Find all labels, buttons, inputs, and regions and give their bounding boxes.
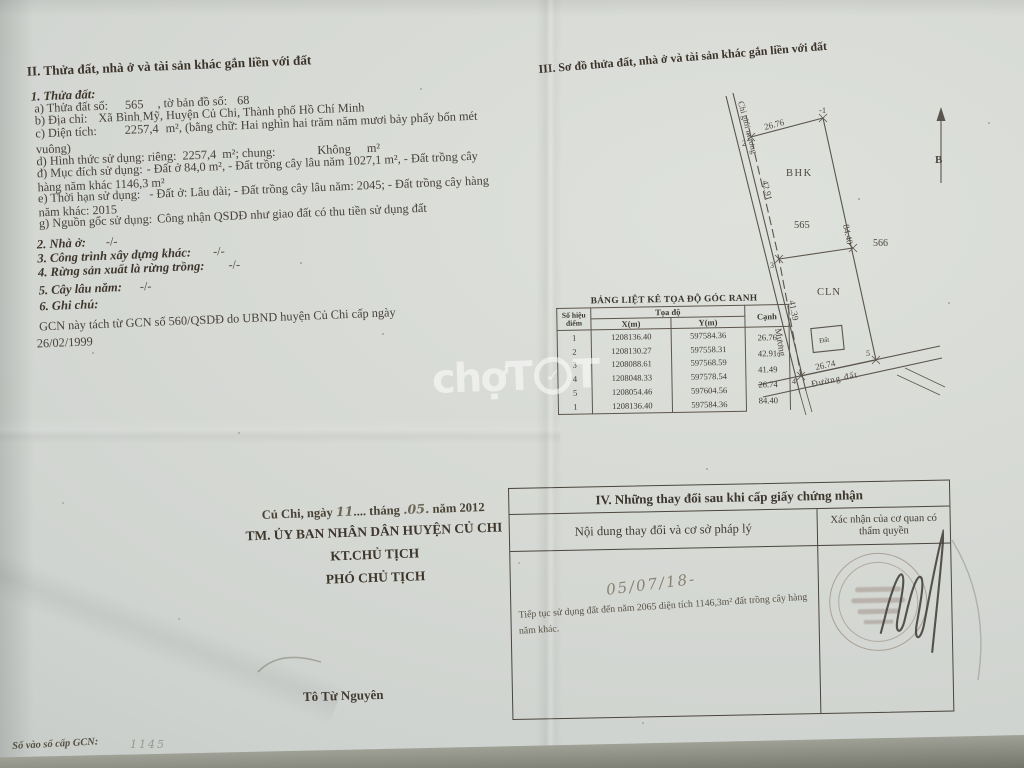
gcn-register-handwriting: 1145 [130,738,166,751]
x-value: 1208136.40 [591,328,671,344]
section-ii: II. Thửa đất, nhà ở và tài sản khác gắn … [20,29,559,400]
y-value: 597578.54 [672,369,746,384]
x-value: 1208136.40 [592,398,672,414]
watermark-t2: T [572,351,601,398]
point-5-label: 5 [866,349,870,358]
edge-2-3-label: 42.91 [760,179,774,201]
point-id: 1 [558,399,592,414]
area-value: 2257,4 [124,122,158,137]
ditch-line-1-ext [800,394,806,415]
x-value: 1208088.61 [592,357,672,372]
signature-block: Củ Chi, ngày 11.... tháng .05. năm 2012 … [228,498,521,591]
house-value: -/- [106,234,118,248]
note-line-2: 26/02/1999 [37,334,94,351]
edge-length: 84.40 [747,395,790,406]
handwritten-month: .05. [403,501,430,517]
line-perennial: 5. Cây lâu năm:-/- [38,279,151,299]
handwritten-day: 11 [336,504,354,520]
perennial-label: 5. Cây lâu năm: [38,280,122,297]
watermark-check-icon: ✓ [533,356,572,395]
col-edge-header: Cạnh [745,304,789,327]
zone-divider [779,248,853,259]
photo-shadow-top [0,0,1024,16]
watermark-t1: T [505,353,534,400]
place-date-mid: .... tháng [353,503,400,519]
paper-crease-horizontal [0,418,560,444]
underlying-page-edge [948,540,1018,680]
issuing-authority: TM. ỦY BAN NHÂN DÂN HUYỆN CỦ CHI [229,519,519,545]
authority-confirmation-cell [818,544,953,714]
place-date-suffix: năm 2012 [432,500,485,516]
point-2-label: 2 [742,139,746,148]
north-label: B [935,154,943,166]
edge-4-5-label: 26.74 [814,358,836,372]
x-value: 1208130.27 [591,343,671,358]
x-value: 1208054.46 [592,384,672,399]
line-notes-label: 6. Ghi chú: [39,297,99,314]
edge-2-1-label: 26.76 [763,117,786,132]
official-signature [852,522,947,659]
chotot-watermark: chợ T ✓ T [431,351,601,403]
perennial-value: -/- [140,279,152,293]
north-edge [751,118,823,137]
ditch-boundary-label: Chỉ giới mương [736,100,760,156]
term-text: - Đất ở: Lâu dài; - Đất trồng cây lâu nă… [149,173,489,201]
edge-length: 42.91 [746,348,789,359]
origin-text: Công nhận QSDĐ như giao đất có thu tiền … [157,201,427,226]
plot-id-label: 565 [794,220,810,231]
ditch-line-2-ext [806,391,812,412]
north-arrow-head [937,107,946,121]
y-value: 597584.36 [672,397,746,413]
area-label: c) Diện tích: [35,124,97,140]
road-branch-2 [897,375,940,395]
y-value: 597604.56 [672,383,746,398]
point-3-label: 3 [770,261,774,270]
y-value: 597584.36 [671,327,745,343]
edge-length: 41.49 [746,364,789,375]
edge-length: 26.74 [746,379,789,390]
edge-lengths: 26.76 42.91 41.49 26.74 84.40 [745,326,790,411]
neighbor-id-label: 566 [873,238,888,249]
landuse-bottom-label: CLN [817,287,841,298]
handwritten-change-date: 05/07/18- [605,570,697,599]
section-ii-title: II. Thửa đất, nhà ở và tài sản khác gắn … [27,52,312,79]
y-value: 597568.59 [672,355,746,370]
structure-label: Đất [819,336,830,345]
landuse-top-label: BHK [786,168,813,179]
point-id: 1 [557,330,591,345]
y-value: 597558.31 [671,341,745,356]
point-1-label: -1 [819,105,826,115]
photo-canvas: II. Thửa đất, nhà ở và tài sản khác gắn … [0,0,1024,768]
title-kt-chu-tich: KT.CHỦ TỊCH [230,542,520,568]
x-value: 1208048.33 [592,370,672,385]
edge-length: 26.76 [746,332,789,343]
watermark-word: chợ [431,354,506,403]
edge-1-5-label: 84.40 [841,223,855,245]
photo-shadow-left [0,0,34,768]
place-date-prefix: Củ Chi, ngày [261,505,332,521]
road-branch-1 [905,368,945,387]
section-iv-table: IV. Những thay đổi sau khi cấp giấy chứn… [508,480,954,720]
forest-value: -/- [228,257,240,271]
constructions-value: -/- [213,244,225,258]
dust-specks [0,0,2,2]
